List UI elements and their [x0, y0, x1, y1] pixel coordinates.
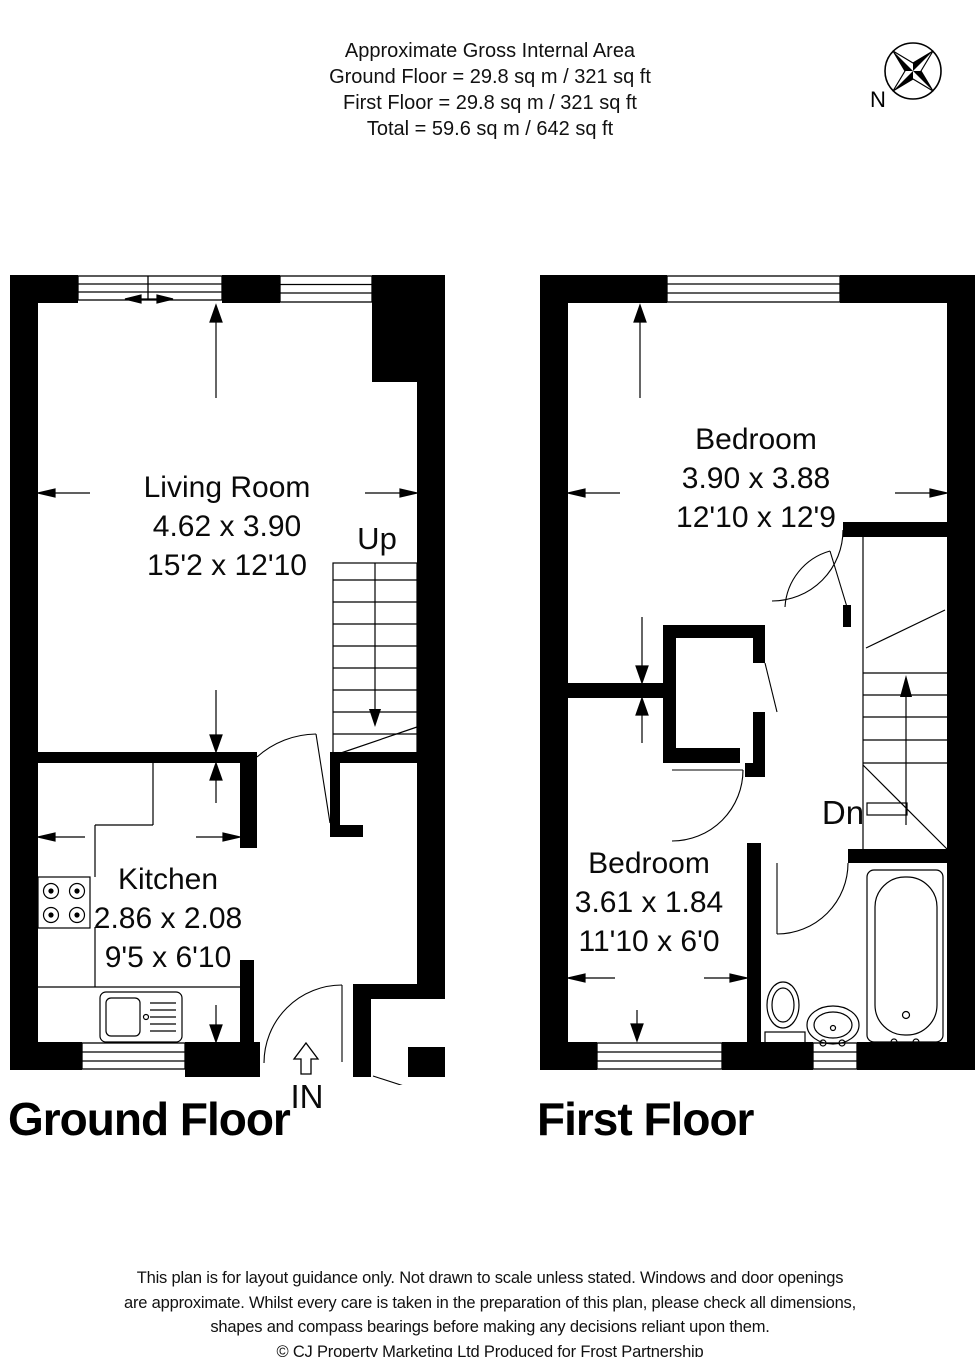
living-room-window-right	[280, 276, 372, 302]
bathroom-fixtures	[765, 870, 943, 1046]
stairs-down-label: Dn	[822, 794, 864, 832]
kitchen-window	[82, 1043, 185, 1069]
hall-door-leaf	[316, 734, 330, 823]
living-room-label: Living Room 4.62 x 3.90 15'2 x 12'10	[144, 468, 311, 585]
living-room-size-imperial: 15'2 x 12'10	[144, 546, 311, 585]
toilet-icon	[765, 982, 805, 1046]
first-floor-plan	[520, 265, 980, 1085]
area-summary-title: Approximate Gross Internal Area	[0, 38, 980, 64]
entrance-arrow-icon	[294, 1043, 318, 1074]
bedroom-front-label: Bedroom 3.90 x 3.88 12'10 x 12'9	[676, 420, 836, 537]
bedroom-back-window	[597, 1043, 722, 1069]
kitchen-name: Kitchen	[94, 860, 242, 899]
landing-door-leaf	[830, 551, 847, 607]
bedroom-back-door-swing	[672, 770, 743, 841]
disclaimer-line-1: This plan is for layout guidance only. N…	[0, 1266, 980, 1291]
living-room-window-left	[78, 276, 222, 300]
bedroom-back-size-metric: 3.61 x 1.84	[575, 883, 723, 922]
total-area: Total = 59.6 sq m / 642 sq ft	[0, 116, 980, 142]
ground-floor-title: Ground Floor	[8, 1092, 290, 1146]
sink-icon	[100, 992, 182, 1042]
porch-door-leaf	[373, 1076, 407, 1085]
bedroom-front-name: Bedroom	[676, 420, 836, 459]
first-floor-area: First Floor = 29.8 sq m / 321 sq ft	[0, 90, 980, 116]
basin-icon	[807, 1006, 859, 1046]
stairs-direction-arrow	[369, 709, 381, 727]
stairs-up-label: Up	[357, 521, 397, 557]
bedroom-front-door-swing	[772, 530, 843, 601]
bathroom-window	[813, 1043, 857, 1069]
area-summary: Approximate Gross Internal Area Ground F…	[0, 38, 980, 142]
entrance-in-label: IN	[291, 1078, 324, 1116]
ground-floor-area: Ground Floor = 29.8 sq m / 321 sq ft	[0, 64, 980, 90]
bathroom-door-swing	[777, 863, 848, 934]
disclaimer: This plan is for layout guidance only. N…	[0, 1266, 980, 1357]
bedroom-front-size-imperial: 12'10 x 12'9	[676, 498, 836, 537]
stairs-direction-arrow	[900, 675, 912, 697]
hall-door-swing	[257, 734, 316, 757]
bathtub-icon	[867, 870, 943, 1045]
disclaimer-line-4: © CJ Property Marketing Ltd Produced for…	[0, 1340, 980, 1357]
bedroom-front-size-metric: 3.90 x 3.88	[676, 459, 836, 498]
bedroom-back-size-imperial: 11'10 x 6'0	[575, 922, 723, 961]
first-floor-stairs	[863, 537, 947, 849]
ground-floor-stairs	[333, 563, 417, 755]
compass-north-label: N	[870, 87, 886, 112]
kitchen-size-metric: 2.86 x 2.08	[94, 899, 242, 938]
living-room-size-metric: 4.62 x 3.90	[144, 507, 311, 546]
hob-icon	[38, 877, 90, 928]
disclaimer-line-3: shapes and compass bearings before makin…	[0, 1315, 980, 1340]
cupboard-door-leaf	[765, 663, 777, 712]
bedroom-back-name: Bedroom	[575, 844, 723, 883]
kitchen-label: Kitchen 2.86 x 2.08 9'5 x 6'10	[94, 860, 242, 977]
bedroom-front-window	[667, 276, 840, 302]
first-floor-title: First Floor	[537, 1092, 753, 1146]
living-room-name: Living Room	[144, 468, 311, 507]
disclaimer-line-2: are approximate. Whilst every care is ta…	[0, 1291, 980, 1316]
kitchen-size-imperial: 9'5 x 6'10	[94, 938, 242, 977]
compass-icon: N	[858, 28, 958, 128]
floorplan-page: Approximate Gross Internal Area Ground F…	[0, 0, 980, 1357]
bedroom-back-label: Bedroom 3.61 x 1.84 11'10 x 6'0	[575, 844, 723, 961]
